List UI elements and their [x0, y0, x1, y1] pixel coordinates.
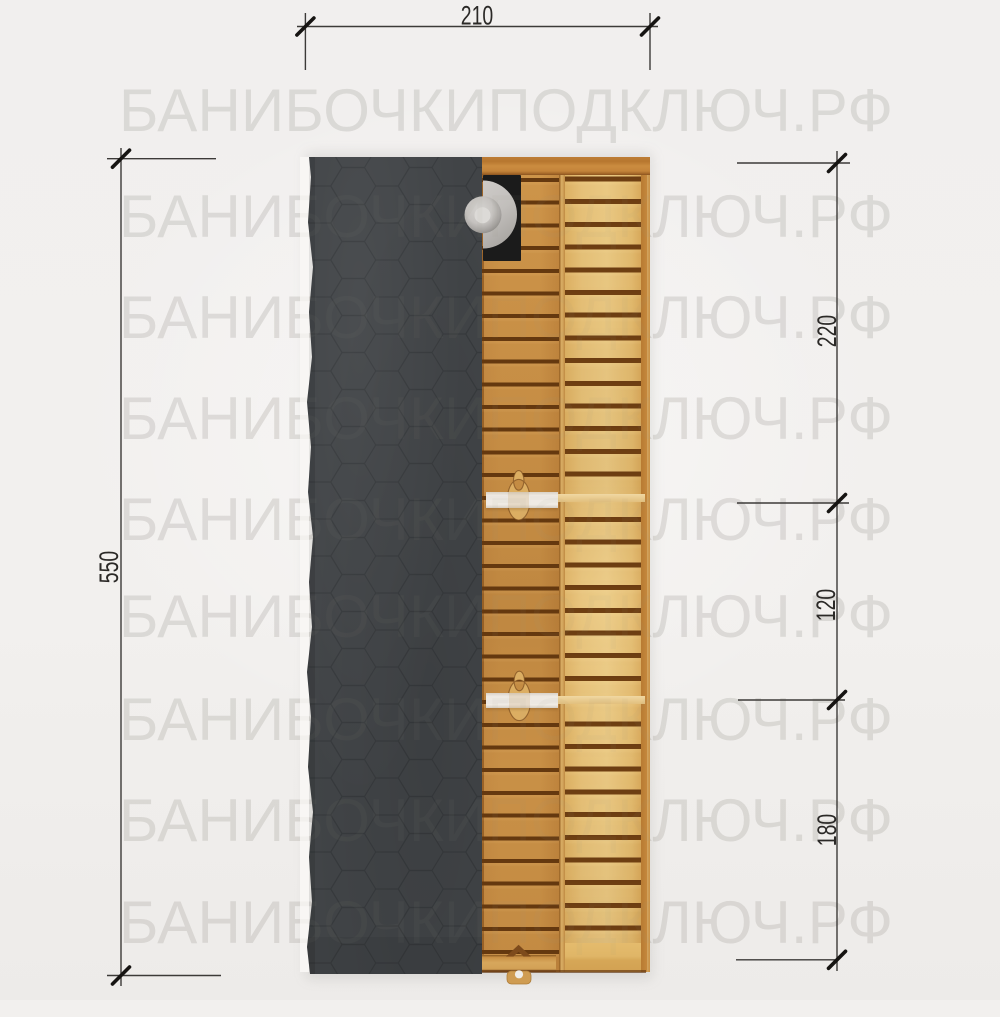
svg-text:210: 210 — [461, 0, 493, 30]
svg-text:180: 180 — [812, 814, 842, 846]
svg-text:550: 550 — [94, 551, 124, 583]
svg-text:220: 220 — [812, 315, 842, 347]
svg-text:120: 120 — [811, 589, 841, 621]
